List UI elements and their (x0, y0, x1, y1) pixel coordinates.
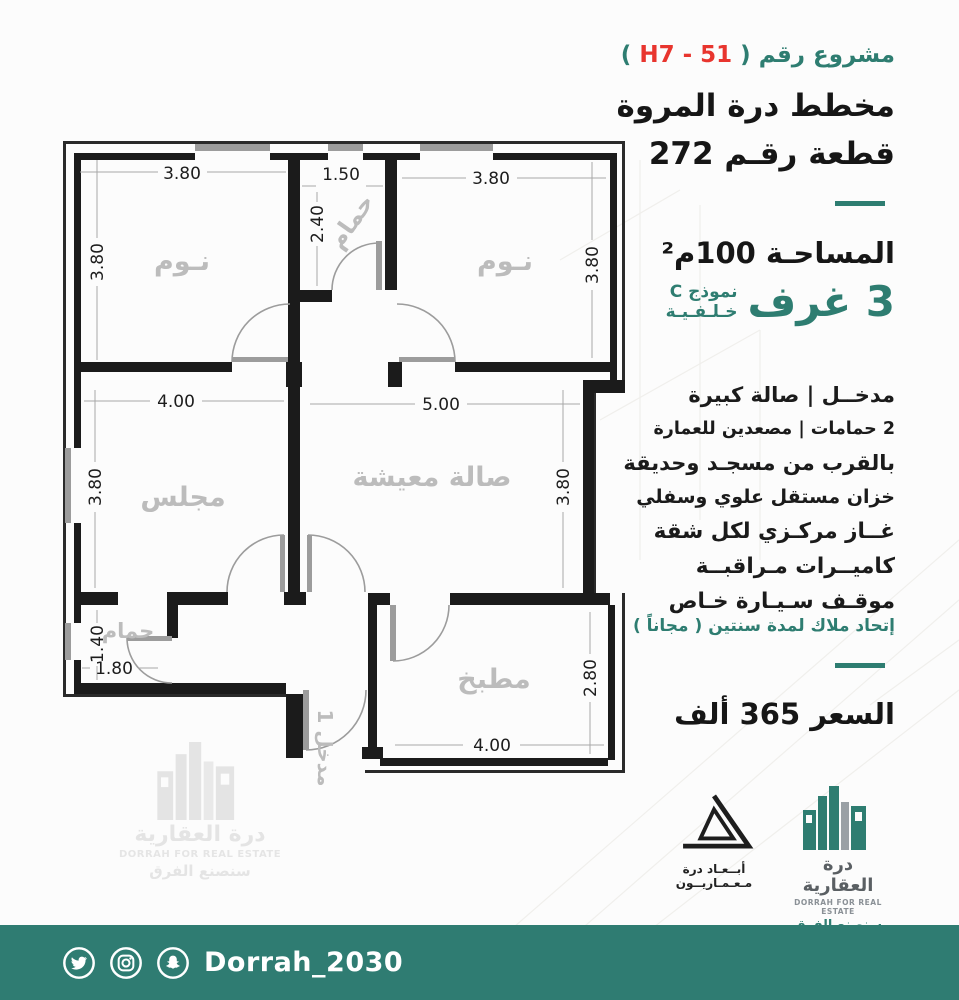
watermark-name-ar: درة العقارية (108, 822, 292, 847)
dim-bathroom1-width: 1.50 (322, 165, 360, 185)
dim-bedroom2-width: 3.80 (472, 169, 510, 189)
divider-top (835, 201, 885, 206)
watermark-name-en: DORRAH FOR REAL ESTATE (108, 849, 292, 860)
twitter-icon[interactable] (62, 946, 96, 980)
dorrah-buildings-icon (803, 786, 873, 850)
feature-cameras: كاميــرات مـراقبــة (623, 554, 895, 579)
dim-kitchen-height: 2.80 (581, 659, 601, 697)
model-name: نموذج C (666, 282, 738, 302)
dim-majlis-height: 3.80 (86, 468, 106, 506)
dorrah-name-ar: درة العقارية (786, 854, 890, 896)
dim-living-width: 5.00 (422, 395, 460, 415)
floor-plan: 3.80 3.80 1.50 2.40 3.80 3.80 4.00 3.80 … (0, 0, 660, 810)
dim-bedroom1-width: 3.80 (163, 164, 201, 184)
social-handle[interactable]: Dorrah_2030 (204, 947, 403, 978)
project-number-line: مشروع رقم ( H7 - 51 ) (621, 42, 895, 68)
rooms-row: 3 غرف نموذج C خـلـفـيـة (666, 281, 895, 323)
snapchat-icon[interactable] (156, 946, 190, 980)
dorrah-logo: درة العقارية DORRAH FOR REAL ESTATE سنصن… (786, 786, 890, 933)
room-label-majlis: مجلس (140, 482, 225, 513)
model-column: نموذج C خـلـفـيـة (666, 282, 738, 322)
watermark-slogan: سنصنع الفرق (108, 862, 292, 880)
project-prefix: مشروع رقم ( (740, 42, 895, 68)
flyer-page: 3.80 3.80 1.50 2.40 3.80 3.80 4.00 3.80 … (0, 0, 959, 1000)
room-label-living: صالة معيشة (353, 462, 512, 493)
feature-bathrooms-elevators: 2 حمامات | مصعدين للعمارة (623, 419, 895, 439)
feature-mosque-garden: بالقرب من مسجـد وحديقة (623, 451, 895, 475)
rooms-count: 3 غرف (748, 281, 895, 323)
abaad-logo: أبــعـاد درة مـعـمـاريــون (668, 792, 760, 890)
room-label-bedroom1: نـوم (154, 246, 210, 277)
dim-bedroom2-height: 3.80 (583, 246, 603, 284)
divider-bottom (835, 663, 885, 668)
price-text: السعر 365 ألف (674, 697, 895, 731)
watermark-logo: درة العقارية DORRAH FOR REAL ESTATE سنصن… (108, 742, 292, 880)
project-suffix: ) (621, 42, 632, 68)
model-sub: خـلـفـيـة (666, 302, 738, 322)
dorrah-name-en: DORRAH FOR REAL ESTATE (786, 898, 890, 916)
dim-kitchen-width: 4.00 (473, 736, 511, 756)
dim-living-height: 3.80 (554, 468, 574, 506)
area-text: المساحـة 100م² (661, 236, 895, 270)
plan-title: مخطط درة المروة (617, 88, 895, 124)
feature-central-gas: غــاز مركـزي لكل شقة (623, 519, 895, 544)
abaad-triangle-icon (674, 792, 754, 850)
room-label-bedroom2: نـوم (477, 246, 533, 277)
watermark-buildings-icon (157, 742, 243, 820)
instagram-icon[interactable] (109, 946, 143, 980)
feature-entrance-hall: مدخــل | صالة كبيرة (623, 383, 895, 407)
social-icons (62, 946, 190, 980)
owners-union-note: إتحاد ملاك لمدة سنتين ( مجاناً ) (633, 616, 895, 636)
footer-bar: Dorrah_2030 (0, 925, 959, 1000)
abaad-name-line2: مـعـمـاريــون (668, 876, 760, 890)
room-label-entrance1: مدخل 1 (313, 709, 337, 786)
dim-majlis-width: 4.00 (157, 392, 195, 412)
dim-bedroom1-height: 3.80 (88, 243, 108, 281)
room-label-bathroom2: حمام (102, 619, 155, 643)
feature-parking: موقـف سـيـارة خـاص (623, 589, 895, 614)
features-list: مدخــل | صالة كبيرة 2 حمامات | مصعدين لل… (623, 383, 895, 614)
feature-water-tank: خزان مستقل علوي وسفلي (623, 486, 895, 508)
plot-number: قطعة رقـم 272 (649, 136, 895, 172)
project-code: H7 - 51 (631, 42, 740, 68)
dim-bathroom2-width: 1.80 (95, 659, 133, 679)
abaad-name-line1: أبــعـاد درة (668, 862, 760, 876)
room-label-kitchen: مطبخ (457, 664, 531, 695)
